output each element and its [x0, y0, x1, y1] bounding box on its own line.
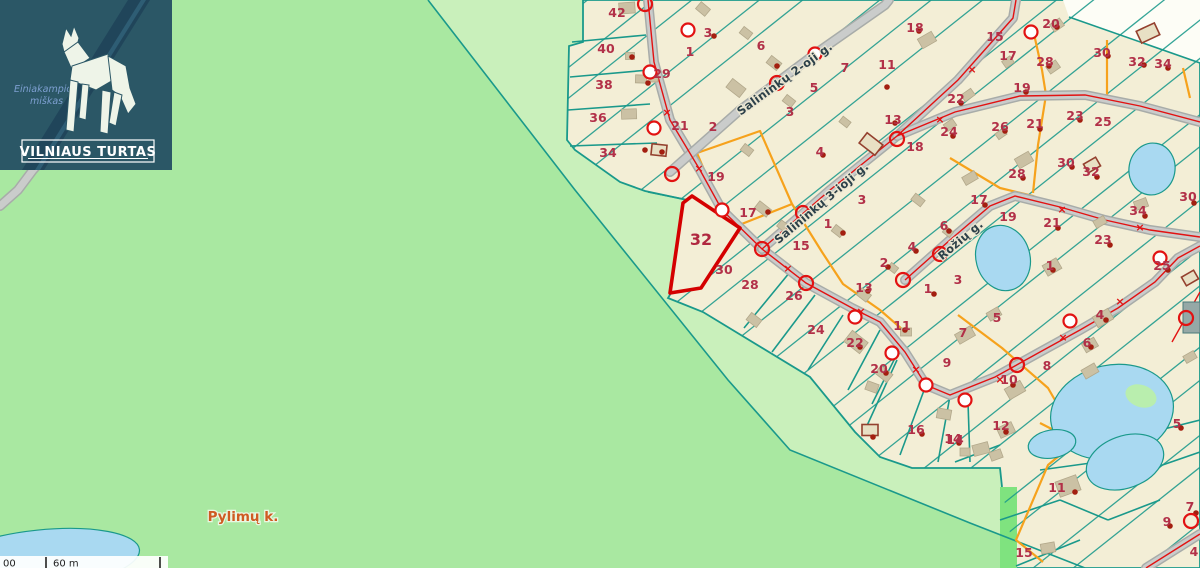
- parcel-number[interactable]: 7: [841, 60, 850, 75]
- parcel-number[interactable]: 13: [855, 280, 872, 295]
- building: [621, 109, 636, 120]
- parcel-number[interactable]: 19: [1013, 80, 1030, 95]
- parcel-number[interactable]: 18: [906, 20, 923, 35]
- parcel-number[interactable]: 30: [1093, 45, 1111, 60]
- parcel-number[interactable]: 1: [824, 216, 833, 231]
- parcel-number[interactable]: 30: [1179, 189, 1197, 204]
- parcel-number[interactable]: 36: [589, 110, 607, 125]
- survey-x-mark: ×: [967, 63, 976, 76]
- brand-logo: EiniakampiomiškasVILNIAUS TURTAS: [0, 0, 172, 170]
- parcel-number[interactable]: 17: [999, 48, 1016, 63]
- selected-parcel-number[interactable]: 32: [690, 230, 712, 249]
- parcel-number[interactable]: 22: [947, 91, 964, 106]
- logo-title: VILNIAUS TURTAS: [20, 145, 157, 160]
- address-dot: [884, 84, 890, 90]
- parcel-number[interactable]: 40: [597, 41, 615, 56]
- parcel-number[interactable]: 9: [943, 355, 952, 370]
- parcel-number[interactable]: 15: [792, 238, 809, 253]
- address-dot: [642, 147, 648, 153]
- survey-node: [1064, 315, 1077, 328]
- parcel-number[interactable]: 4: [1096, 307, 1105, 322]
- parcel-number[interactable]: 32: [1082, 164, 1099, 179]
- survey-node: [849, 311, 862, 324]
- building: [960, 448, 970, 456]
- building: [1040, 542, 1056, 554]
- building: [936, 408, 952, 420]
- village-label: Pylimų k.: [208, 509, 279, 525]
- parcel-number[interactable]: 10: [1000, 372, 1018, 387]
- parcel-number[interactable]: 25: [1153, 258, 1170, 273]
- survey-node: [886, 347, 899, 360]
- parcel-number[interactable]: 32: [1128, 54, 1145, 69]
- parcel-number[interactable]: 30: [715, 262, 733, 277]
- parcel-number[interactable]: 17: [970, 192, 987, 207]
- scale-bar-distance-label: 60 m: [53, 559, 79, 568]
- parcel-number[interactable]: 26: [785, 288, 803, 303]
- parcel-number[interactable]: 34: [599, 145, 617, 160]
- parcel-number[interactable]: 7: [1186, 499, 1195, 514]
- parcel-number[interactable]: 13: [884, 112, 901, 127]
- parcel-number[interactable]: 20: [870, 361, 888, 376]
- parcel-number[interactable]: 9: [1163, 514, 1172, 529]
- parcel-number[interactable]: 26: [991, 119, 1009, 134]
- parcel-number[interactable]: 17: [739, 205, 756, 220]
- parcel-number[interactable]: 1: [924, 281, 933, 296]
- address-dot: [1072, 489, 1078, 495]
- parcel-number[interactable]: 6: [1083, 335, 1092, 350]
- parcel-number[interactable]: 3: [858, 192, 867, 207]
- parcel-number[interactable]: 23: [1066, 108, 1083, 123]
- parcel-number[interactable]: 8: [1043, 358, 1052, 373]
- parcel-number[interactable]: 4: [816, 144, 825, 159]
- parcel-number[interactable]: 30: [1057, 155, 1075, 170]
- parcel-number[interactable]: 14: [946, 432, 964, 447]
- parcel-number[interactable]: 5: [993, 310, 1002, 325]
- survey-x-mark: ×: [1115, 295, 1124, 308]
- scale-bar-background: [0, 556, 168, 568]
- scale-bar-left-text: 00: [3, 559, 16, 568]
- parcel-number[interactable]: 5: [810, 80, 819, 95]
- address-dot: [629, 54, 635, 60]
- parcel-number[interactable]: 4: [1190, 544, 1199, 559]
- edge-marker: [1183, 302, 1200, 333]
- cadastral-map-canvas[interactable]: ×××××××××××××424038363429132121967531113…: [0, 0, 1200, 568]
- parcel-number[interactable]: 2: [709, 119, 718, 134]
- survey-x-mark: ×: [662, 106, 671, 119]
- parcel-number[interactable]: 21: [1043, 215, 1060, 230]
- parcel-number[interactable]: 28: [1008, 166, 1025, 181]
- parcel-number[interactable]: 7: [959, 325, 968, 340]
- address-dot: [870, 434, 876, 440]
- survey-x-mark: ×: [1058, 331, 1067, 344]
- survey-x-mark: ×: [694, 162, 703, 175]
- survey-x-mark: ×: [783, 262, 792, 275]
- parcel-number[interactable]: 6: [940, 218, 949, 233]
- parcel-number[interactable]: 15: [986, 29, 1003, 44]
- parcel-number[interactable]: 1: [686, 44, 695, 59]
- parcel-number[interactable]: 6: [757, 38, 766, 53]
- survey-node: [648, 122, 661, 135]
- parcel-number[interactable]: 25: [1094, 114, 1111, 129]
- parcel-number[interactable]: 29: [653, 66, 670, 81]
- parcel-number[interactable]: 11: [1048, 480, 1065, 495]
- parcel-number[interactable]: 20: [1042, 16, 1060, 31]
- parcel-number[interactable]: 11: [878, 57, 895, 72]
- parcel-number[interactable]: 22: [846, 335, 863, 350]
- parcel-number[interactable]: 34: [1154, 56, 1172, 71]
- forest-name-label: miškas: [30, 96, 63, 107]
- address-dot: [774, 63, 780, 69]
- parcel-number[interactable]: 3: [786, 104, 795, 119]
- parcel-number[interactable]: 34: [1129, 203, 1147, 218]
- parcel-number[interactable]: 1: [1046, 258, 1055, 273]
- survey-node: [920, 379, 933, 392]
- survey-x-mark: ×: [1135, 221, 1144, 234]
- forest-name-label: Einiakampio: [14, 84, 72, 95]
- parcel-number[interactable]: 2: [880, 255, 889, 270]
- parcel-number[interactable]: 38: [595, 77, 612, 92]
- parcel-number[interactable]: 18: [906, 139, 923, 154]
- building: [651, 144, 667, 157]
- address-dot: [840, 230, 846, 236]
- parcel-number[interactable]: 5: [1173, 416, 1182, 431]
- survey-node: [959, 394, 972, 407]
- survey-node: [716, 204, 729, 217]
- parcel-number[interactable]: 21: [1026, 116, 1043, 131]
- parcel-number[interactable]: 24: [807, 322, 825, 337]
- parcel-number[interactable]: 3: [954, 272, 963, 287]
- parcel-number[interactable]: 4: [908, 239, 917, 254]
- address-dot: [645, 80, 651, 86]
- parcel-number[interactable]: 12: [992, 418, 1009, 433]
- survey-x-mark: ×: [911, 363, 920, 376]
- parcel-number[interactable]: 28: [741, 277, 758, 292]
- parcel-number[interactable]: 42: [608, 5, 625, 20]
- parcel-number[interactable]: 3: [704, 25, 713, 40]
- parcel-number[interactable]: 24: [940, 124, 958, 139]
- parcel-number[interactable]: 16: [907, 422, 925, 437]
- survey-node: [682, 24, 695, 37]
- parcel-number[interactable]: 28: [1036, 54, 1053, 69]
- address-dot: [659, 149, 665, 155]
- building: [862, 425, 878, 436]
- parcel-number[interactable]: 23: [1094, 232, 1111, 247]
- parcel-number[interactable]: 15: [1015, 545, 1032, 560]
- survey-node: [1025, 26, 1038, 39]
- parcel-number[interactable]: 21: [671, 118, 688, 133]
- address-dot: [765, 209, 771, 215]
- parcel-number[interactable]: 11: [893, 318, 910, 333]
- map-viewport[interactable]: ×××××××××××××424038363429132121967531113…: [0, 0, 1200, 568]
- scale-bar: 0060 m: [0, 556, 168, 568]
- parcel-number[interactable]: 19: [707, 169, 724, 184]
- parcel-number[interactable]: 19: [999, 209, 1016, 224]
